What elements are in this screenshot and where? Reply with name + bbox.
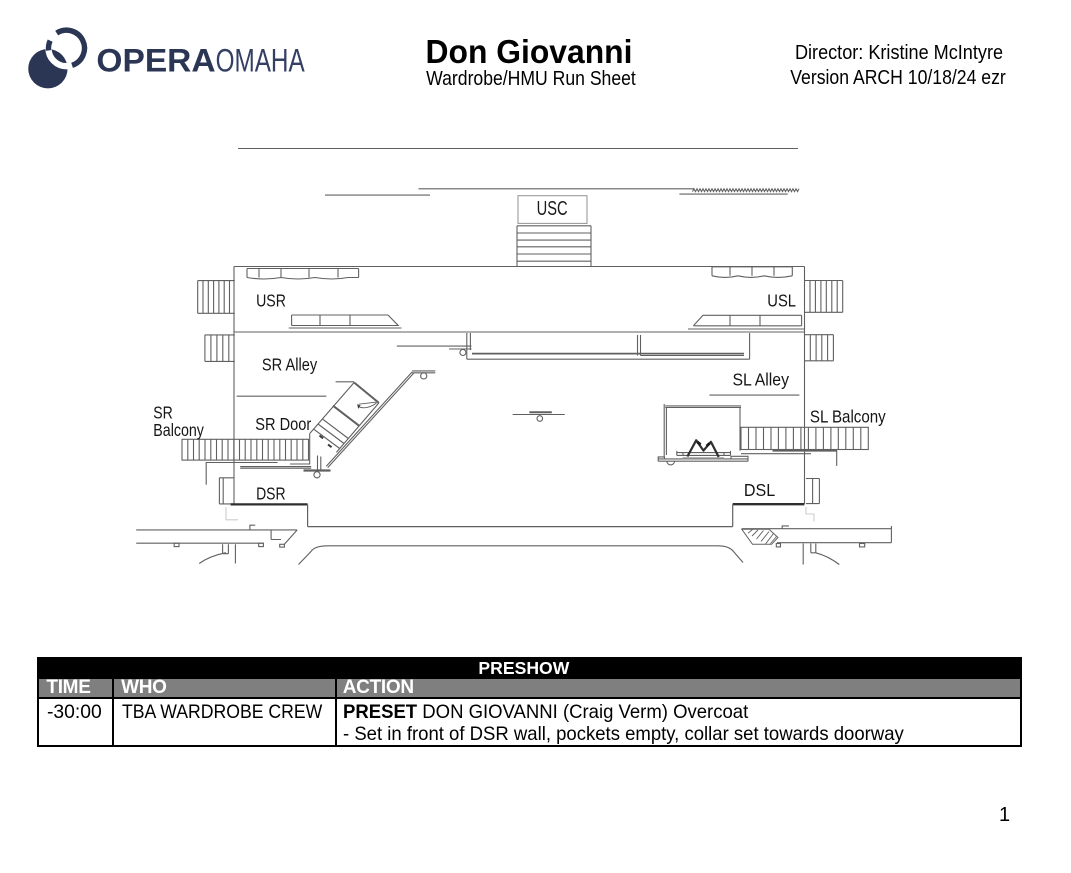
svg-text:Balcony: Balcony <box>153 420 204 440</box>
svg-text:SR Door: SR Door <box>255 414 311 434</box>
svg-text:USL: USL <box>767 291 796 311</box>
svg-text:USR: USR <box>256 290 286 310</box>
svg-text:USC: USC <box>537 198 568 220</box>
svg-text:DSL: DSL <box>744 480 775 500</box>
svg-text:SL Balcony: SL Balcony <box>810 406 886 426</box>
svg-text:SL Alley: SL Alley <box>733 369 790 389</box>
svg-text:DSR: DSR <box>256 484 286 504</box>
svg-text:SR Alley: SR Alley <box>262 355 318 375</box>
